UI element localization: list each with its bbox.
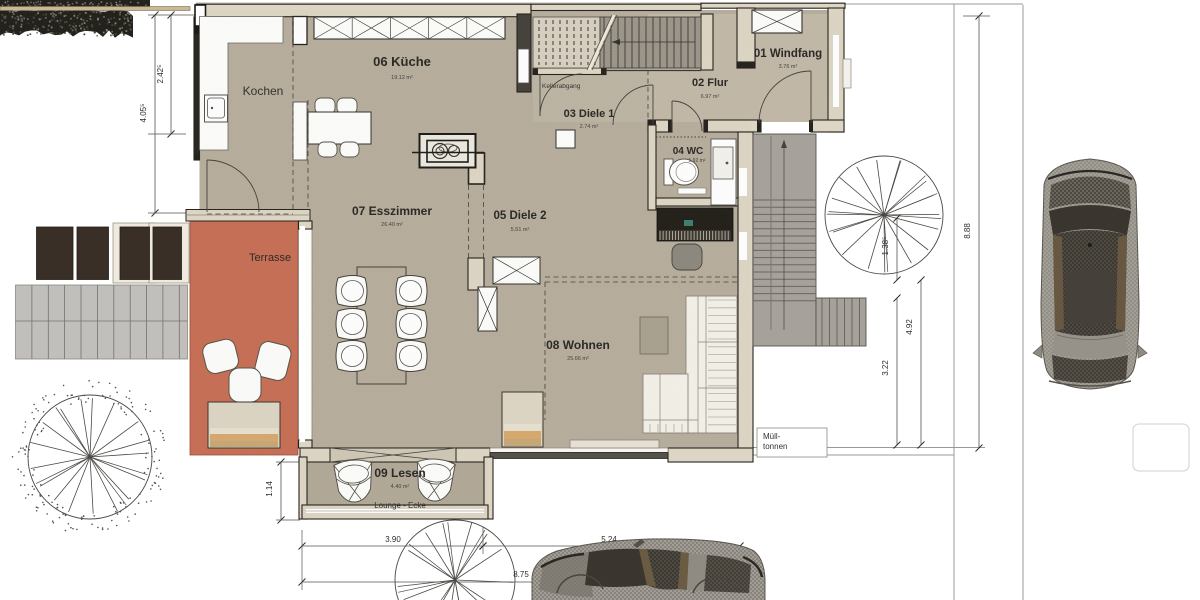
svg-text:3.90: 3.90 xyxy=(385,535,401,544)
svg-text:6.97 m²: 6.97 m² xyxy=(701,94,720,100)
svg-text:tonnen: tonnen xyxy=(763,442,787,451)
svg-text:05 Diele 2: 05 Diele 2 xyxy=(493,210,546,222)
svg-text:1.38⁵: 1.38⁵ xyxy=(881,237,890,256)
svg-text:Lounge - Ecke: Lounge - Ecke xyxy=(374,501,426,510)
svg-text:06 Küche: 06 Küche xyxy=(373,54,431,69)
svg-text:Müll-: Müll- xyxy=(763,432,781,441)
svg-text:2.74 m²: 2.74 m² xyxy=(580,124,599,130)
svg-text:5.51 m²: 5.51 m² xyxy=(511,227,530,233)
svg-text:09 Lesen: 09 Lesen xyxy=(374,466,425,480)
svg-text:8.75: 8.75 xyxy=(513,570,529,579)
svg-text:4.05⁵: 4.05⁵ xyxy=(139,104,148,123)
svg-text:01 Windfang: 01 Windfang xyxy=(754,48,822,60)
svg-text:1.14: 1.14 xyxy=(265,481,274,497)
svg-text:07 Esszimmer: 07 Esszimmer xyxy=(352,204,432,218)
svg-text:02 Flur: 02 Flur xyxy=(692,77,729,89)
svg-text:03 Diele 1: 03 Diele 1 xyxy=(564,108,615,120)
svg-text:8.88: 8.88 xyxy=(963,223,972,239)
svg-text:25.66 m²: 25.66 m² xyxy=(567,356,589,362)
svg-text:4.40 m²: 4.40 m² xyxy=(391,484,410,490)
svg-text:3.76 m²: 3.76 m² xyxy=(779,64,798,70)
svg-text:26.40 m²: 26.40 m² xyxy=(381,222,403,228)
svg-text:19.12 m²: 19.12 m² xyxy=(391,75,413,81)
svg-text:Kochen: Kochen xyxy=(243,84,284,98)
svg-text:2.42⁵: 2.42⁵ xyxy=(156,65,165,84)
svg-text:08 Wohnen: 08 Wohnen xyxy=(546,338,610,352)
svg-text:3.22: 3.22 xyxy=(881,360,890,376)
svg-text:4.92: 4.92 xyxy=(905,319,914,335)
